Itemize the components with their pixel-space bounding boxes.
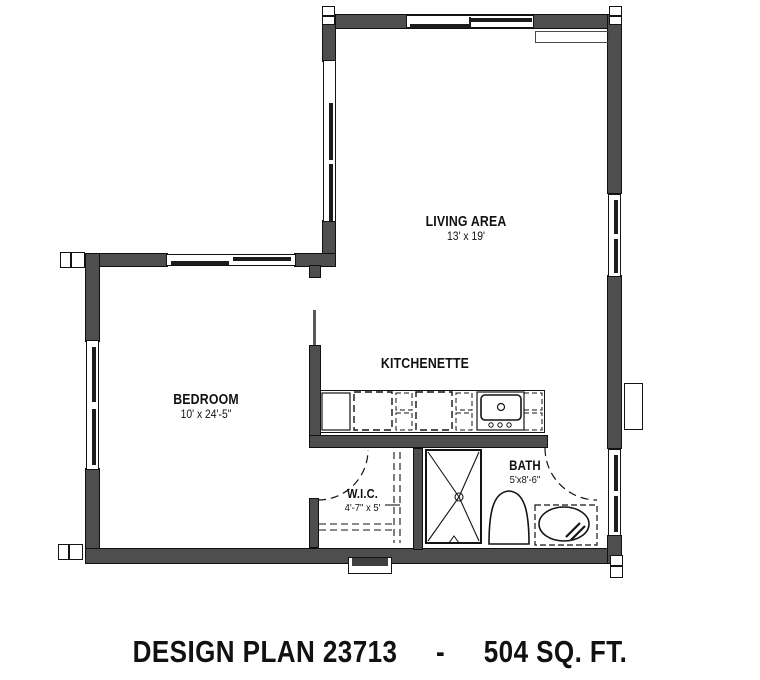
floor-plan: LIVING AREA 13' x 19' BEDROOM 10' x 24'-… [0,0,760,680]
window-living-left [323,60,336,222]
living-area-dims: 13' x 19' [403,231,529,243]
post-marker-bedroom-corner [60,252,85,268]
post-marker-top-left [322,6,335,25]
threshold-step [348,557,392,574]
window-top-wall [406,15,534,28]
soffit-line [535,31,609,43]
bath-label-group: BATH 5'x8'-6" [465,458,585,486]
window-right-lower [608,449,621,536]
wall-right-upper [607,14,622,194]
post-marker-top-right [609,6,622,25]
wall-thin-passage [313,310,316,346]
square-footage-label: 504 SQ. FT. [484,634,628,670]
living-area-label: LIVING AREA [407,214,526,230]
bedroom-label-group: BEDROOM 10' x 24'-5" [136,392,276,421]
living-area-label-group: LIVING AREA 13' x 19' [396,214,536,243]
wall-kitchen-bath [309,435,548,448]
wall-left-upper [85,253,100,342]
title-separator: - [436,634,445,670]
exterior-utility-box [624,383,643,430]
fixtures-overlay [0,0,760,680]
window-right-upper [608,194,621,277]
kitchen-counter [320,390,545,433]
bath-dims: 5'x8'-6" [471,474,579,486]
post-marker-bottom-left [58,544,83,560]
window-bedroom-top [166,254,296,266]
wic-dims: 4'-7" x 5' [311,502,415,514]
title-block: DESIGN PLAN 23713 - 504 SQ. FT. [61,634,699,670]
window-left-wall [86,340,99,470]
wall-right-middle [607,275,622,449]
wic-label-group: W.I.C. 4'-7" x 5' [305,486,420,514]
bath-label: BATH [474,458,576,473]
kitchenette-label-group: KITCHENETTE [355,356,495,372]
bedroom-dims: 10' x 24'-5" [143,409,269,421]
wic-label: W.I.C. [314,486,412,501]
bedroom-label: BEDROOM [147,392,266,408]
wall-stub-passage-top [309,265,321,278]
plan-number-label: DESIGN PLAN 23713 [133,634,398,670]
post-marker-bottom-right [610,555,623,578]
toilet-symbol [489,491,529,544]
vanity-sink-symbol [535,505,597,545]
kitchenette-label: KITCHENETTE [366,356,485,372]
